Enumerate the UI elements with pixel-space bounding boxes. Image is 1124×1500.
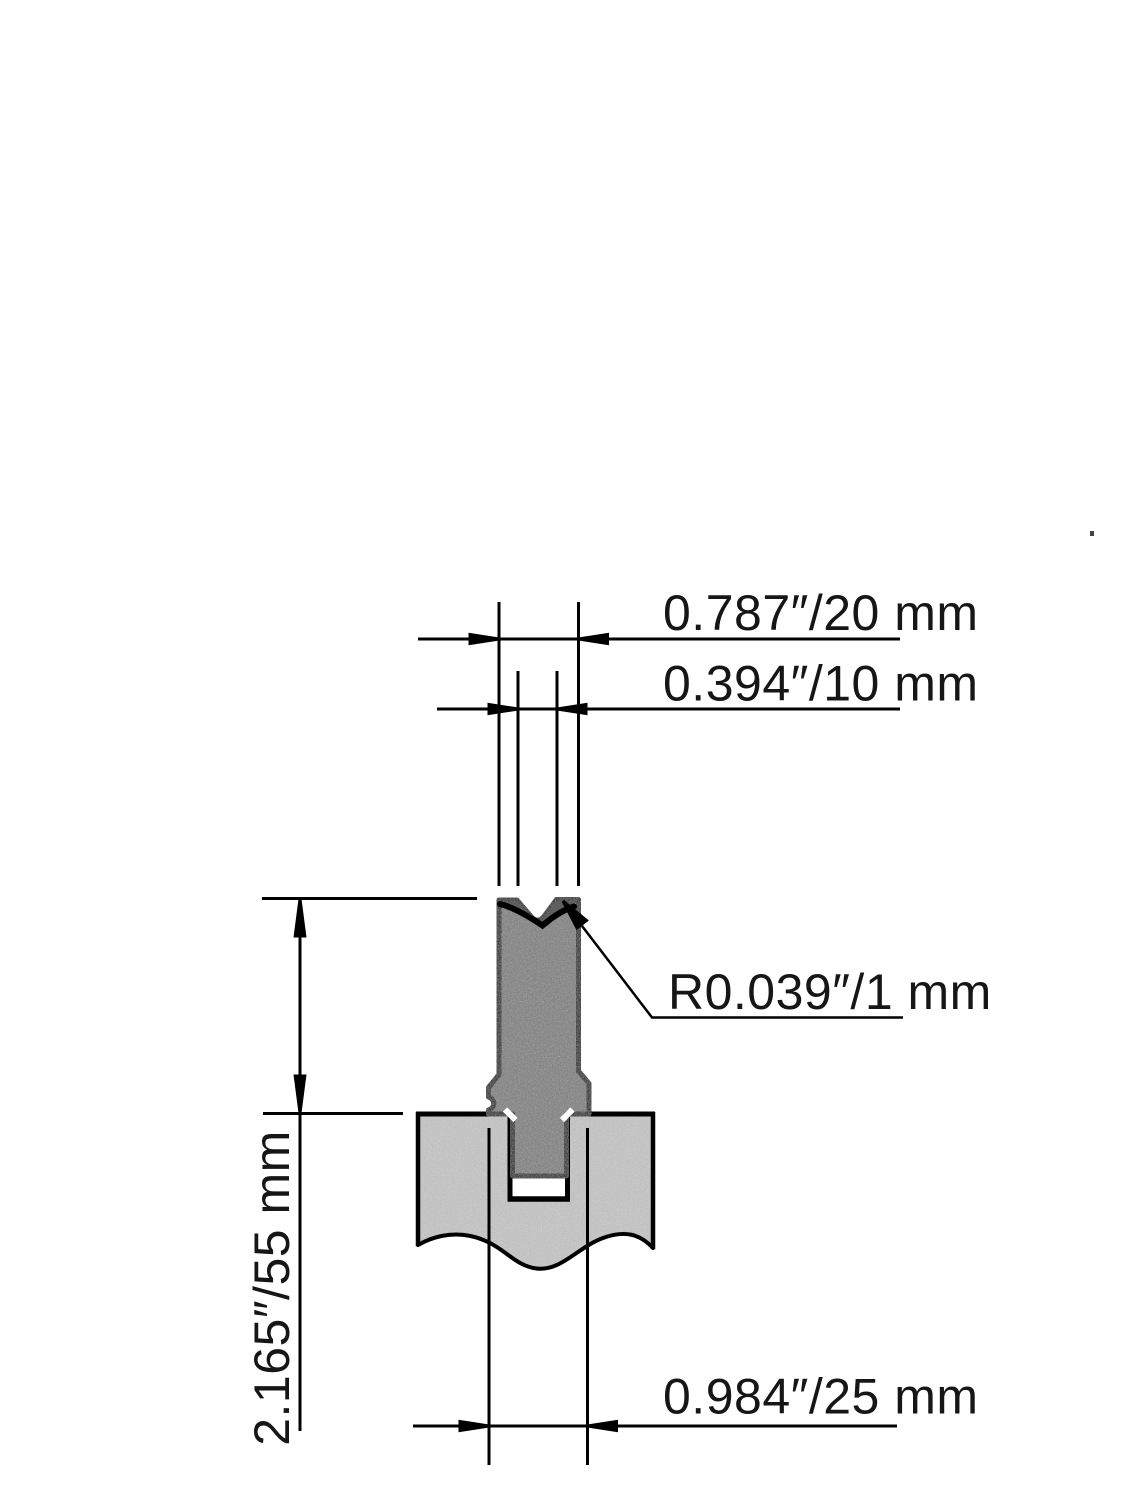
dim-label-shoulder-radius: R0.039″/1 mm — [668, 964, 992, 1020]
dim-label-groove-width: 0.394″/10 mm — [663, 656, 979, 712]
dim-label-height: 2.165″/55 mm — [244, 1130, 300, 1446]
stray-dot-artifact — [1090, 531, 1094, 536]
dim-label-base-width: 0.984″/25 mm — [663, 1369, 979, 1425]
die-cross-section-drawing: 0.787″/20 mm 0.394″/10 mm R0.039″/1 mm 0… — [0, 0, 1124, 1500]
drawing-background — [0, 0, 1124, 1500]
technical-drawing-page: 0.787″/20 mm 0.394″/10 mm R0.039″/1 mm 0… — [0, 0, 1124, 1500]
dim-label-top-width: 0.787″/20 mm — [663, 585, 979, 641]
